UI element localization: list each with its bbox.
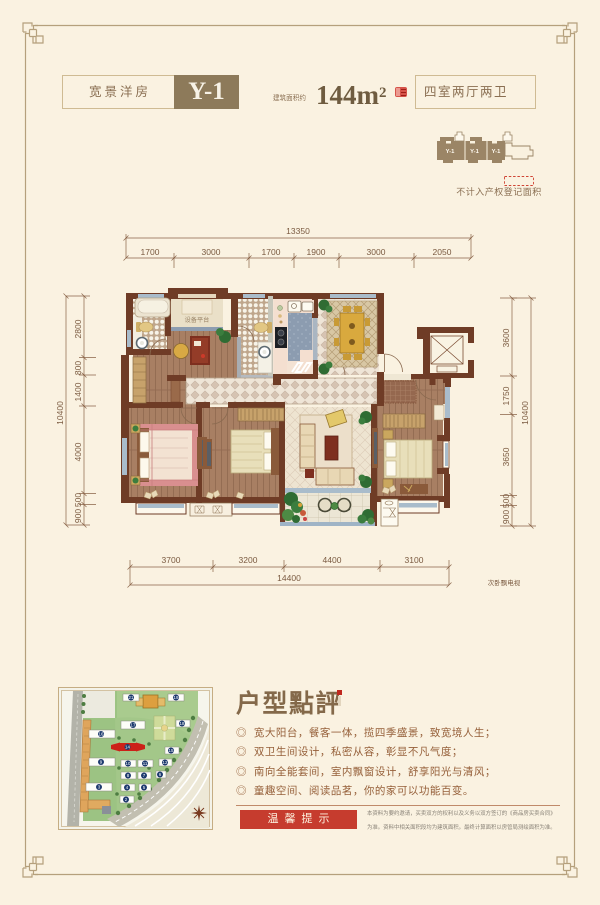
svg-text:4400: 4400	[323, 555, 342, 565]
svg-text:3650: 3650	[501, 447, 511, 466]
svg-text:900: 900	[501, 510, 511, 524]
svg-text:3600: 3600	[501, 328, 511, 347]
svg-text:14: 14	[125, 745, 130, 750]
svg-text:Y-1: Y-1	[470, 149, 479, 155]
svg-text:4000: 4000	[73, 442, 83, 461]
svg-text:10400: 10400	[520, 401, 530, 425]
svg-text:500: 500	[501, 494, 511, 508]
svg-text:21: 21	[129, 695, 134, 700]
svg-text:Y-1: Y-1	[446, 149, 455, 155]
svg-text:1750: 1750	[501, 386, 511, 405]
svg-text:不计入产权登记面积: 不计入产权登记面积	[456, 186, 542, 197]
svg-text:1900: 1900	[307, 247, 326, 257]
svg-text:18: 18	[180, 721, 185, 726]
svg-text:12: 12	[163, 760, 168, 765]
svg-text:11: 11	[143, 761, 148, 766]
svg-text:800: 800	[73, 361, 83, 375]
svg-text:次卧飘电视: 次卧飘电视	[488, 578, 521, 587]
svg-text:1700: 1700	[262, 247, 281, 257]
svg-text:15: 15	[169, 748, 174, 753]
svg-text:2800: 2800	[73, 319, 83, 338]
svg-text:3700: 3700	[162, 555, 181, 565]
svg-text:1700: 1700	[141, 247, 160, 257]
svg-text:Y-1: Y-1	[492, 149, 501, 155]
svg-text:3000: 3000	[202, 247, 221, 257]
svg-text:设备平台: 设备平台	[185, 316, 210, 324]
svg-text:14400: 14400	[277, 573, 301, 583]
svg-text:13350: 13350	[286, 226, 310, 236]
svg-text:3200: 3200	[239, 555, 258, 565]
svg-text:900: 900	[73, 509, 83, 523]
svg-text:10: 10	[126, 761, 131, 766]
svg-text:17: 17	[131, 723, 136, 728]
svg-text:1400: 1400	[73, 382, 83, 401]
svg-text:19: 19	[174, 695, 179, 700]
svg-text:3000: 3000	[367, 247, 386, 257]
svg-text:16: 16	[99, 732, 104, 737]
svg-text:10400: 10400	[55, 401, 65, 425]
svg-text:500: 500	[73, 493, 83, 507]
svg-text:2050: 2050	[433, 247, 452, 257]
svg-text:3100: 3100	[405, 555, 424, 565]
